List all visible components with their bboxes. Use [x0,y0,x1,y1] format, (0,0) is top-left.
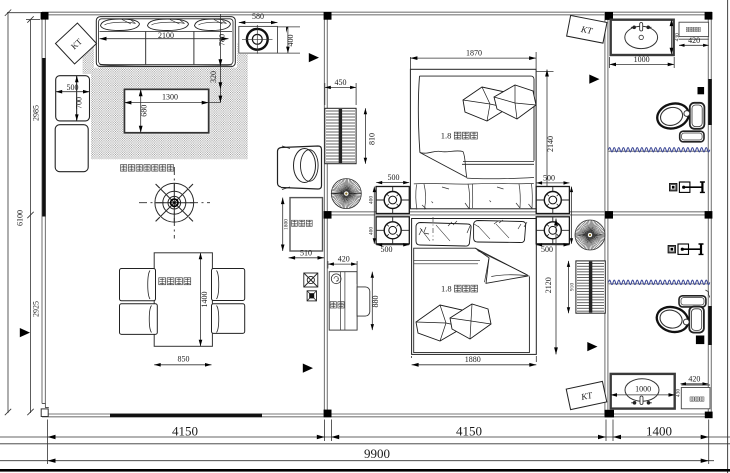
svg-text:1880: 1880 [465,355,481,364]
svg-text:500: 500 [541,245,553,254]
svg-text:1000: 1000 [635,385,651,394]
svg-text:880: 880 [371,296,380,308]
svg-text:1000: 1000 [634,55,650,64]
svg-text:780: 780 [218,34,227,46]
svg-text:1.8: 1.8 [441,284,452,294]
svg-text:4150: 4150 [456,424,482,439]
svg-text:2120: 2120 [544,277,553,293]
svg-text:400: 400 [368,196,374,205]
svg-text:1300: 1300 [162,93,178,102]
svg-text:510: 510 [300,248,312,257]
svg-text:1400: 1400 [646,424,672,439]
svg-text:1870: 1870 [466,48,482,57]
svg-text:450: 450 [335,78,347,87]
svg-text:500: 500 [543,173,555,182]
svg-text:850: 850 [178,355,190,364]
svg-text:580: 580 [252,12,264,21]
svg-text:430: 430 [676,389,682,398]
svg-text:500: 500 [67,83,79,92]
svg-text:420: 420 [688,36,700,45]
svg-text:500: 500 [381,245,393,254]
svg-text:400: 400 [286,35,295,47]
svg-text:1.8: 1.8 [441,131,452,141]
svg-text:2985: 2985 [32,105,41,121]
svg-text:400: 400 [368,227,374,236]
svg-text:4150: 4150 [172,423,198,438]
svg-text:420: 420 [338,255,350,264]
svg-text:420: 420 [688,375,700,384]
svg-text:2925: 2925 [32,301,41,317]
svg-text:1400: 1400 [200,292,209,308]
svg-text:2140: 2140 [546,136,555,152]
svg-text:500: 500 [388,173,400,182]
svg-text:910: 910 [570,283,576,292]
svg-text:320: 320 [209,71,218,83]
svg-text:2100: 2100 [158,31,174,40]
svg-text:6100: 6100 [16,210,25,226]
svg-text:9900: 9900 [364,446,390,461]
svg-text:1800: 1800 [283,219,289,230]
svg-text:680: 680 [139,105,148,117]
svg-text:700: 700 [75,97,84,109]
svg-text:810: 810 [368,133,377,145]
